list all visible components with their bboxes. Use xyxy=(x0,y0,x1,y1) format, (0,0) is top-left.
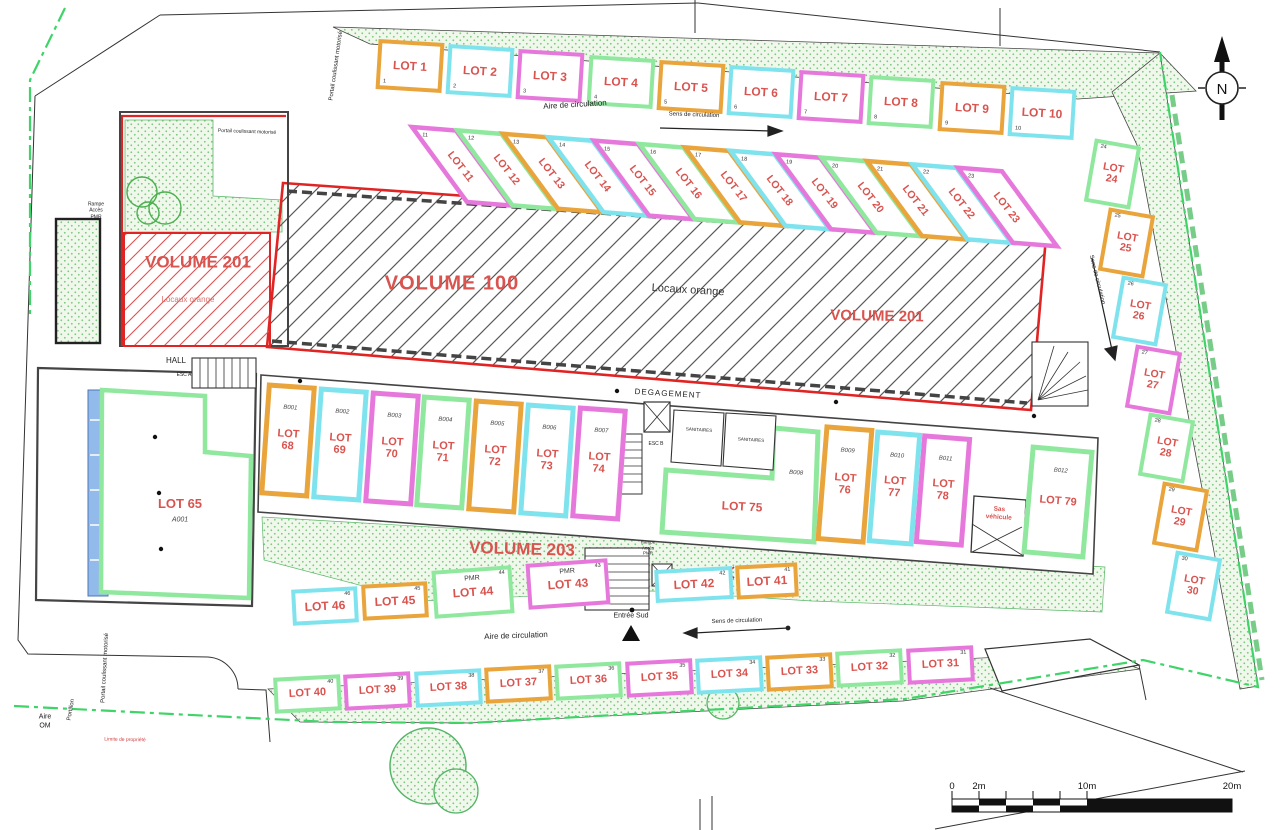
courtyard-green xyxy=(125,120,282,232)
south-entrance-marker xyxy=(622,625,640,641)
green-band-north xyxy=(333,27,1196,99)
vehicle-shaft xyxy=(971,496,1026,556)
site-plan: N 0 2m 10m 20m LOT 11LOT 22LOT 33LOT 44L… xyxy=(0,0,1280,830)
tree xyxy=(434,769,478,813)
scale-tick-10m: 10m xyxy=(1078,781,1097,792)
north-label: N xyxy=(1217,81,1228,98)
north-arrow-icon: N xyxy=(1198,36,1246,120)
site-plan-drawing: N 0 2m 10m 20m xyxy=(0,0,1280,830)
scale-tick-20m: 20m xyxy=(1223,781,1242,792)
scale-tick-0: 0 xyxy=(949,781,954,792)
stair-esc-b xyxy=(616,434,642,494)
elevator-core xyxy=(644,402,670,432)
volume-201-west xyxy=(124,233,270,346)
stair-east xyxy=(1032,342,1088,406)
tree xyxy=(707,687,739,719)
scale-bar: 0 2m 10m 20m xyxy=(949,781,1241,812)
planter-west xyxy=(56,219,100,343)
scale-tick-2m: 2m xyxy=(972,781,985,792)
stair-esc-a xyxy=(192,358,256,388)
green-band-east xyxy=(1112,53,1258,689)
